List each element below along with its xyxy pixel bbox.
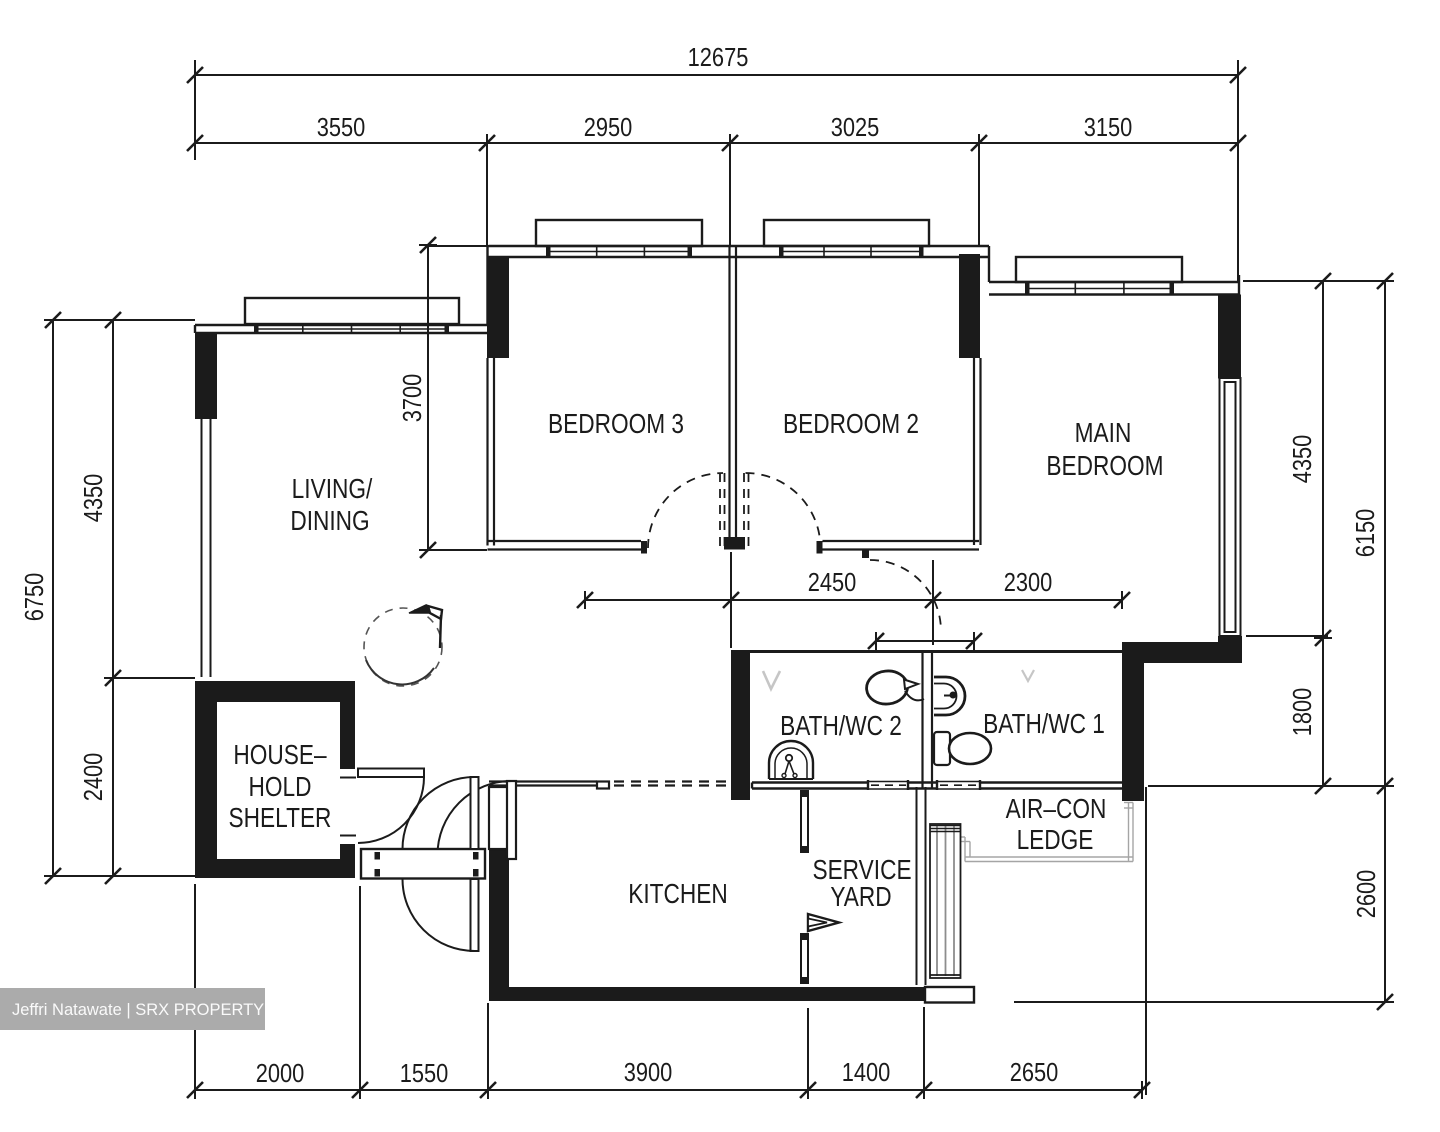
svg-text:3700: 3700 [398, 374, 427, 423]
svg-text:HOUSE–: HOUSE– [233, 740, 327, 771]
svg-text:2000: 2000 [256, 1059, 305, 1088]
svg-text:LIVING/: LIVING/ [292, 474, 373, 505]
svg-text:SHELTER: SHELTER [229, 803, 332, 834]
svg-text:BEDROOM: BEDROOM [1046, 451, 1163, 482]
svg-text:LEDGE: LEDGE [1017, 825, 1094, 856]
svg-text:3900: 3900 [624, 1058, 673, 1087]
svg-text:MAIN: MAIN [1075, 418, 1132, 449]
svg-text:1800: 1800 [1288, 688, 1317, 737]
svg-text:2950: 2950 [584, 113, 633, 142]
svg-text:3025: 3025 [831, 113, 880, 142]
svg-text:DINING: DINING [290, 506, 369, 537]
svg-text:4350: 4350 [79, 474, 108, 523]
svg-text:6750: 6750 [20, 573, 49, 622]
svg-text:HOLD: HOLD [249, 772, 312, 803]
svg-text:2600: 2600 [1352, 870, 1381, 919]
svg-text:AIR–CON: AIR–CON [1006, 794, 1107, 825]
svg-text:BEDROOM 2: BEDROOM 2 [783, 409, 919, 440]
svg-text:YARD: YARD [830, 882, 891, 913]
svg-text:6150: 6150 [1351, 509, 1380, 558]
svg-text:1400: 1400 [842, 1058, 891, 1087]
svg-text:2650: 2650 [1010, 1058, 1059, 1087]
svg-text:2400: 2400 [79, 753, 108, 802]
svg-text:KITCHEN: KITCHEN [628, 879, 728, 910]
svg-text:4350: 4350 [1288, 435, 1317, 484]
svg-text:2300: 2300 [1004, 568, 1053, 597]
svg-text:BATH/WC 2: BATH/WC 2 [780, 711, 902, 742]
svg-text:3550: 3550 [317, 113, 366, 142]
svg-text:1550: 1550 [400, 1059, 449, 1088]
svg-text:3150: 3150 [1084, 113, 1133, 142]
svg-text:2450: 2450 [808, 568, 857, 597]
svg-text:BEDROOM 3: BEDROOM 3 [548, 409, 684, 440]
svg-text:Jeffri Natawate | SRX PROPERTY: Jeffri Natawate | SRX PROPERTY [12, 1001, 264, 1019]
svg-text:12675: 12675 [688, 43, 749, 72]
svg-text:BATH/WC 1: BATH/WC 1 [983, 709, 1105, 740]
